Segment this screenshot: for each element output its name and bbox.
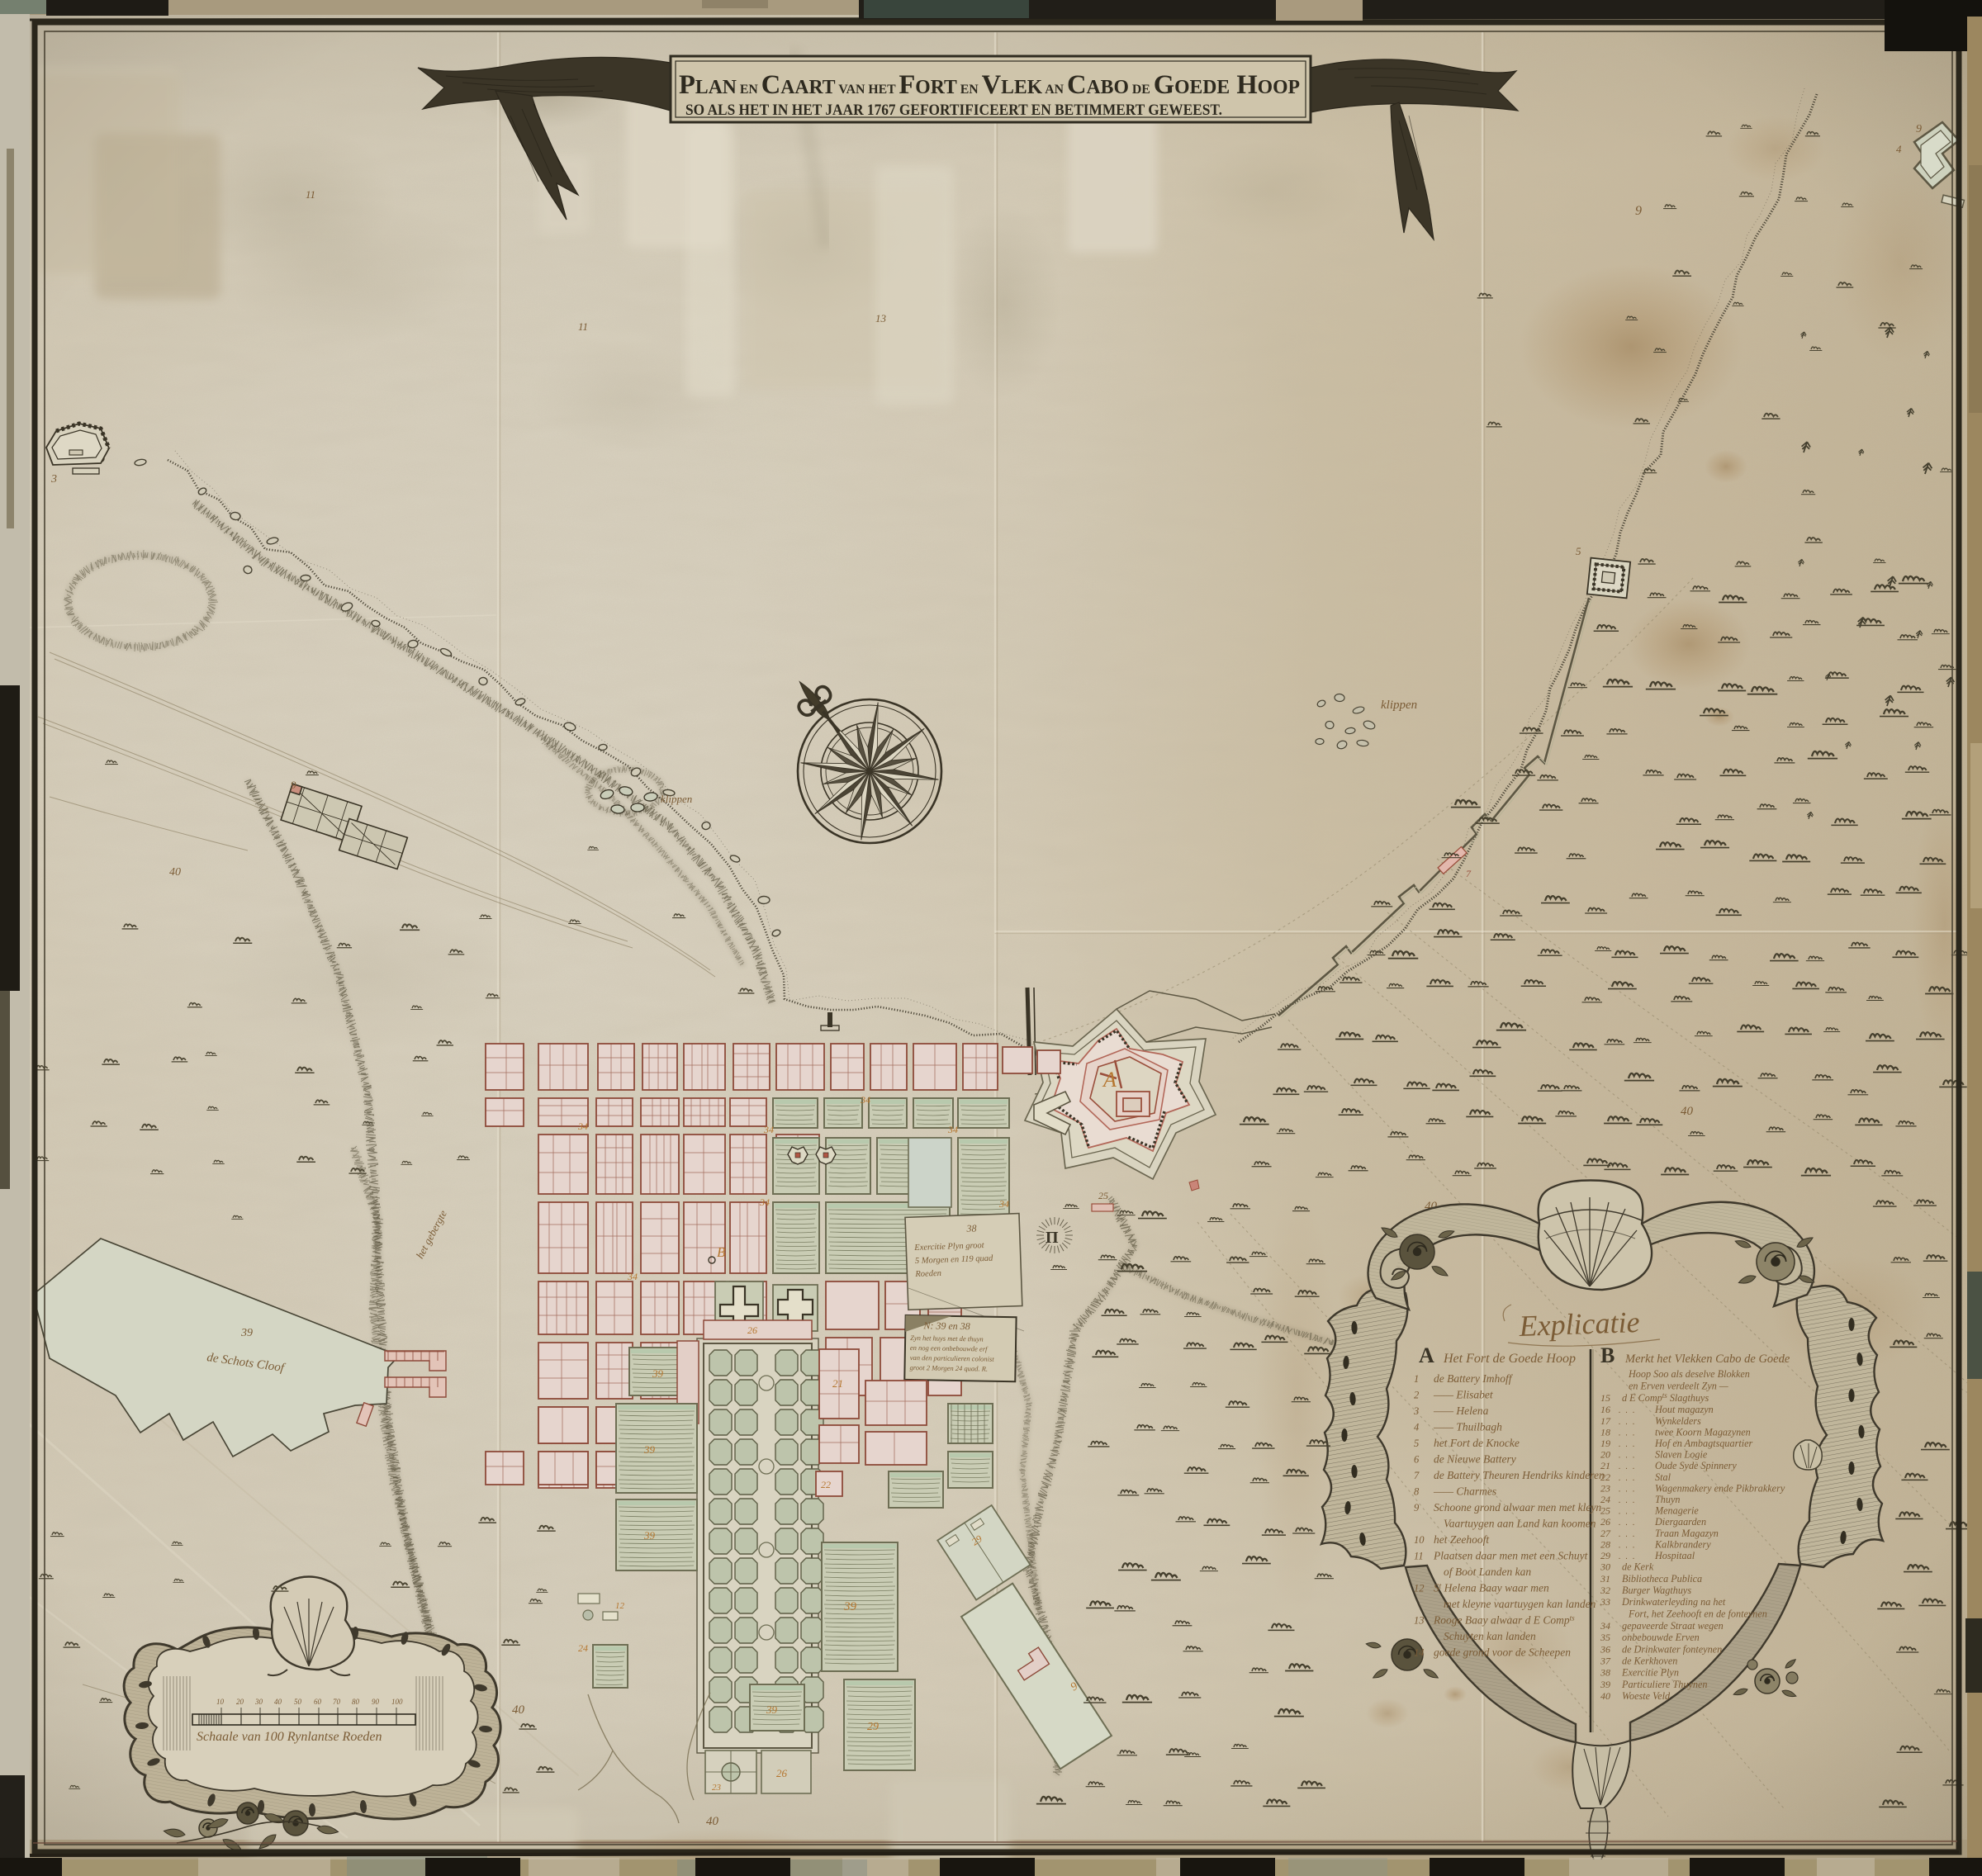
svg-text:Hospitaal: Hospitaal [1654, 1550, 1695, 1561]
svg-text:Diergaarden: Diergaarden [1654, 1516, 1706, 1528]
svg-text:Traan Magazyn: Traan Magazyn [1655, 1528, 1719, 1539]
svg-text:...: ... [1619, 1440, 1640, 1449]
svg-text:Plaatsen daar men met een Schu: Plaatsen daar men met een Schuyt [1433, 1550, 1589, 1562]
svg-text:Zyn het huys met de thuyn: Zyn het huys met de thuyn [910, 1334, 984, 1343]
svg-text:...: ... [1619, 1418, 1640, 1427]
svg-text:...: ... [1619, 1496, 1640, 1505]
svg-text:23: 23 [712, 1783, 722, 1793]
svg-text:100: 100 [391, 1698, 403, 1706]
svg-text:80: 80 [352, 1698, 360, 1706]
svg-text:A: A [1102, 1068, 1117, 1092]
svg-text:23: 23 [1600, 1482, 1610, 1494]
svg-text:Drinkwaterleyding na het: Drinkwaterleyding na het [1621, 1596, 1726, 1608]
svg-text:—— Charmes: —— Charmes [1433, 1485, 1496, 1498]
svg-text:40: 40 [1681, 1105, 1694, 1118]
svg-text:...: ... [1619, 1552, 1640, 1561]
svg-text:Hoop Soo als deselve Blokken: Hoop Soo als deselve Blokken [1628, 1368, 1750, 1380]
svg-text:Exercitie Plyn: Exercitie Plyn [1621, 1667, 1679, 1679]
svg-text:12: 12 [1414, 1583, 1425, 1594]
svg-text:38: 38 [965, 1222, 976, 1234]
svg-text:34: 34 [759, 1196, 770, 1208]
svg-text:...: ... [1619, 1508, 1640, 1517]
svg-text:...: ... [1619, 1406, 1640, 1415]
svg-text:40: 40 [169, 866, 181, 879]
svg-text:22: 22 [821, 1479, 831, 1490]
svg-text:25: 25 [1600, 1505, 1610, 1517]
svg-text:A: A [1419, 1343, 1434, 1367]
svg-text:8: 8 [1414, 1486, 1420, 1498]
svg-text:26: 26 [1600, 1516, 1610, 1528]
svg-text:34: 34 [1600, 1620, 1610, 1632]
svg-text:11: 11 [1414, 1551, 1424, 1562]
svg-text:klippen: klippen [661, 793, 692, 805]
svg-text:of Boot Landen kan: of Boot Landen kan [1444, 1566, 1531, 1578]
svg-text:goede grond voor de Scheepen: goede grond voor de Scheepen [1434, 1646, 1571, 1659]
svg-text:25: 25 [1098, 1190, 1108, 1201]
svg-text:de Drinkwater fonteynen: de Drinkwater fonteynen [1622, 1643, 1722, 1655]
svg-text:Menagerie: Menagerie [1654, 1505, 1699, 1517]
svg-text:St Helena Baay waar men: St Helena Baay waar men [1434, 1582, 1549, 1594]
svg-text:Hof en Ambagtsquartier: Hof en Ambagtsquartier [1654, 1438, 1753, 1449]
svg-text:30: 30 [254, 1698, 263, 1706]
svg-text:het Fort de Knocke: het Fort de Knocke [1434, 1437, 1520, 1449]
svg-text:34: 34 [947, 1124, 958, 1135]
svg-text:21: 21 [1600, 1460, 1610, 1471]
svg-text:6: 6 [1414, 1454, 1420, 1466]
svg-text:18: 18 [1600, 1426, 1610, 1438]
svg-text:en Erven verdeelt Zyn —: en Erven verdeelt Zyn — [1629, 1381, 1728, 1392]
svg-text:14: 14 [1414, 1647, 1425, 1659]
svg-text:11: 11 [306, 188, 315, 201]
svg-text:B: B [1600, 1343, 1615, 1367]
svg-text:40: 40 [512, 1703, 525, 1717]
svg-text:9: 9 [1635, 204, 1642, 218]
svg-text:van den particulieren colonist: van den particulieren colonist [910, 1353, 995, 1363]
svg-text:70: 70 [333, 1698, 341, 1706]
svg-text:de Battery Theuren Hendriks ki: de Battery Theuren Hendriks kinderen [1434, 1469, 1605, 1481]
svg-text:30: 30 [1600, 1561, 1610, 1573]
svg-text:34: 34 [763, 1124, 774, 1135]
svg-text:...: ... [1619, 1485, 1640, 1494]
svg-text:Stal: Stal [1655, 1471, 1671, 1483]
svg-text:15: 15 [1600, 1392, 1610, 1404]
svg-text:40: 40 [274, 1698, 282, 1706]
svg-text:39: 39 [652, 1367, 664, 1380]
svg-text:Roeden: Roeden [914, 1269, 941, 1279]
svg-text:20: 20 [236, 1698, 244, 1706]
svg-text:24: 24 [578, 1642, 588, 1654]
svg-text:het Zeehooft: het Zeehooft [1434, 1533, 1490, 1546]
svg-text:de Nieuwe Battery: de Nieuwe Battery [1434, 1453, 1516, 1466]
svg-text:10: 10 [216, 1698, 225, 1706]
svg-text:7: 7 [1414, 1470, 1420, 1481]
svg-text:twee Koorn Magazynen: twee Koorn Magazynen [1655, 1426, 1751, 1438]
svg-text:39: 39 [240, 1327, 253, 1339]
svg-text:19: 19 [1600, 1438, 1610, 1449]
svg-text:7: 7 [1466, 868, 1472, 879]
svg-text:37: 37 [1600, 1656, 1611, 1667]
svg-text:35: 35 [1600, 1632, 1610, 1643]
svg-text:Schaale van 100 Rynlantse Roed: Schaale van 100 Rynlantse Roeden [197, 1730, 382, 1744]
svg-text:4: 4 [1414, 1422, 1419, 1433]
svg-text:Π: Π [1046, 1229, 1059, 1247]
svg-text:de Battery Imhoff: de Battery Imhoff [1434, 1372, 1514, 1385]
svg-text:9: 9 [1916, 123, 1922, 135]
svg-text:Merkt het Vlekken Cabo de Goed: Merkt het Vlekken Cabo de Goede [1624, 1353, 1790, 1366]
svg-text:...: ... [1619, 1474, 1640, 1483]
svg-text:...: ... [1619, 1518, 1640, 1528]
svg-text:26: 26 [747, 1324, 757, 1336]
svg-text:40: 40 [706, 1815, 719, 1828]
svg-text:50: 50 [294, 1698, 302, 1706]
svg-text:5: 5 [1576, 545, 1581, 557]
svg-text:...: ... [1619, 1428, 1640, 1438]
svg-text:3: 3 [1413, 1405, 1419, 1417]
svg-text:...: ... [1619, 1541, 1640, 1550]
svg-text:onbebouwde Erven: onbebouwde Erven [1622, 1632, 1700, 1643]
svg-text:—— Helena: —— Helena [1433, 1405, 1489, 1417]
svg-text:22: 22 [1600, 1471, 1610, 1483]
svg-text:Explicatie: Explicatie [1518, 1305, 1640, 1343]
svg-text:Slaven Logie: Slaven Logie [1655, 1449, 1708, 1461]
svg-text:11: 11 [578, 320, 588, 333]
svg-text:39: 39 [1600, 1679, 1610, 1690]
svg-text:39: 39 [843, 1600, 857, 1613]
svg-text:38: 38 [1600, 1667, 1610, 1679]
svg-text:60: 60 [314, 1698, 322, 1706]
svg-text:—— Elisabet: —— Elisabet [1433, 1389, 1494, 1401]
svg-text:24: 24 [1600, 1494, 1610, 1505]
svg-text:34: 34 [627, 1271, 638, 1282]
svg-text:29: 29 [867, 1721, 879, 1733]
svg-text:29: 29 [1600, 1550, 1610, 1561]
svg-text:Burger Wagthuys: Burger Wagthuys [1622, 1585, 1691, 1596]
svg-text:Particuliere Thuynen: Particuliere Thuynen [1621, 1679, 1707, 1690]
svg-text:...: ... [1619, 1462, 1640, 1471]
svg-text:N: 39 en 38: N: 39 en 38 [922, 1319, 970, 1332]
svg-text:Thuyn: Thuyn [1655, 1494, 1680, 1505]
svg-text:Fort, het Zeehooft en de fonte: Fort, het Zeehooft en de fonteynen [1628, 1608, 1767, 1619]
svg-text:gepaveerde Straat wegen: gepaveerde Straat wegen [1622, 1620, 1724, 1632]
svg-text:B: B [717, 1244, 726, 1260]
svg-text:16: 16 [1600, 1404, 1610, 1415]
svg-text:...: ... [1619, 1530, 1640, 1539]
svg-text:9: 9 [1414, 1502, 1420, 1514]
svg-text:12: 12 [615, 1601, 625, 1611]
svg-text:13: 13 [875, 312, 887, 325]
svg-text:31: 31 [1600, 1573, 1610, 1585]
svg-text:Wynkelders: Wynkelders [1655, 1415, 1701, 1427]
svg-text:Wagenmakery ende Pikbrakkery: Wagenmakery ende Pikbrakkery [1655, 1482, 1785, 1494]
svg-text:90: 90 [372, 1698, 380, 1706]
svg-text:Kalkbrandery: Kalkbrandery [1654, 1538, 1711, 1550]
svg-text:27: 27 [1600, 1528, 1611, 1539]
svg-text:39: 39 [766, 1703, 778, 1716]
svg-text:17: 17 [1600, 1415, 1611, 1427]
svg-text:4: 4 [1896, 143, 1902, 155]
svg-text:1: 1 [1414, 1373, 1419, 1385]
svg-text:5: 5 [1414, 1438, 1419, 1449]
svg-text:2: 2 [1414, 1390, 1419, 1401]
svg-text:33: 33 [1600, 1596, 1610, 1608]
svg-text:Vaartuygen aan Land kan koomen: Vaartuygen aan Land kan koomen [1444, 1518, 1596, 1530]
svg-text:Schuyten kan landen: Schuyten kan landen [1444, 1630, 1536, 1642]
svg-text:Het Fort de Goede Hoop: Het Fort de Goede Hoop [1443, 1352, 1576, 1366]
svg-text:36: 36 [1600, 1643, 1610, 1655]
svg-text:Rooge Baay alwaar d E Compts: Rooge Baay alwaar d E Compts [1433, 1614, 1575, 1627]
svg-text:32: 32 [1600, 1585, 1610, 1596]
svg-text:13: 13 [1414, 1615, 1425, 1627]
svg-text:34: 34 [998, 1198, 1009, 1210]
svg-text:34: 34 [860, 1094, 870, 1106]
svg-text:39: 39 [643, 1529, 656, 1542]
svg-text:40: 40 [1600, 1690, 1610, 1702]
svg-text:...: ... [1619, 1452, 1640, 1461]
svg-text:20: 20 [1600, 1449, 1610, 1461]
svg-text:—— Thuilbagh: —— Thuilbagh [1433, 1421, 1502, 1433]
svg-text:groot 2 Morgen 24 quad. R.: groot 2 Morgen 24 quad. R. [909, 1363, 988, 1373]
svg-text:de Kerk: de Kerk [1622, 1561, 1654, 1573]
svg-text:klippen: klippen [1381, 699, 1417, 712]
svg-text:26: 26 [776, 1767, 788, 1779]
svg-text:3: 3 [50, 473, 57, 486]
svg-text:9: 9 [291, 779, 296, 791]
svg-text:Oude Syde Spinnery: Oude Syde Spinnery [1655, 1460, 1737, 1471]
svg-text:en nog een onbebouwde erf: en nog een onbebouwde erf [910, 1343, 989, 1353]
svg-text:39: 39 [643, 1443, 656, 1456]
svg-text:34: 34 [577, 1120, 588, 1132]
svg-text:Bibliotheca Publica: Bibliotheca Publica [1622, 1573, 1702, 1585]
svg-text:SO ALS HET IN HET JAAR 1767 GE: SO ALS HET IN HET JAAR 1767 GEFORTIFICEE… [685, 102, 1222, 119]
svg-text:Hout magazyn: Hout magazyn [1654, 1404, 1714, 1415]
svg-text:de Kerkhoven: de Kerkhoven [1622, 1656, 1677, 1667]
svg-text:Schoone grond alwaar men met k: Schoone grond alwaar men met kleyn [1434, 1501, 1601, 1514]
svg-text:28: 28 [1600, 1538, 1610, 1550]
svg-text:21: 21 [832, 1377, 843, 1390]
svg-text:10: 10 [1414, 1534, 1425, 1546]
svg-text:Woeste Veld: Woeste Veld [1622, 1690, 1671, 1702]
svg-text:met kleyne vaartuygen kan land: met kleyne vaartuygen kan landen [1444, 1598, 1596, 1610]
